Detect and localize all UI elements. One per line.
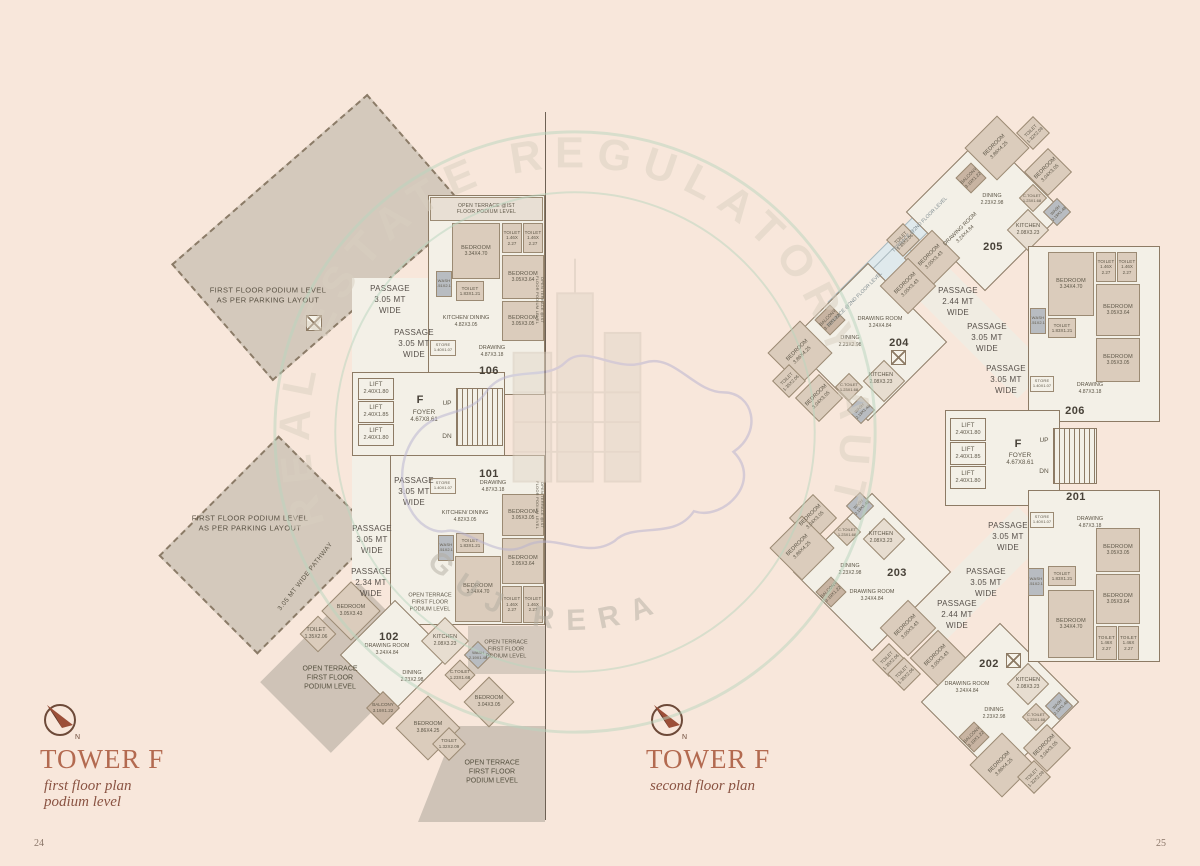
room-drawing-label: DRAWING4.87X3.18 xyxy=(1077,516,1103,530)
room-ctoilet-label: C.TOILET1.23X1.68 xyxy=(1027,712,1045,722)
room-dim: 1.46X 2.27 xyxy=(527,602,539,613)
lift: LIFT2.40X1.80 xyxy=(358,378,394,400)
stairs-dn-label: DN xyxy=(1039,468,1048,476)
passage-label: PASSAGE 3.05 MT WIDE xyxy=(967,322,1007,354)
room-name: BEDROOM xyxy=(508,555,538,562)
room-name: BEDROOM xyxy=(508,271,538,278)
room-dim: 3.24X4.84 xyxy=(364,650,409,657)
right-plan-subtitle: second floor plan xyxy=(650,778,755,795)
room-toilet: TOILET1.83X1.21 xyxy=(456,533,484,553)
room-drawing-label: DRAWING ROOM3.24X4.84 xyxy=(849,589,894,603)
room-name: BEDROOM xyxy=(1103,544,1133,551)
room-toilet: TOILET1.83X1.21 xyxy=(1048,566,1076,586)
room-dim: 1.40X1.07 xyxy=(1033,520,1051,525)
room-dim: 1.35X2.06 xyxy=(305,634,328,641)
room-dim: 3.19X1.22 xyxy=(372,708,394,714)
room-dim: 3.05X3.64 xyxy=(1107,310,1130,316)
room-name: BEDROOM xyxy=(1103,304,1133,311)
room-wash: WASH1.51X2.10 xyxy=(436,271,452,297)
room-name: KITCHEN xyxy=(1016,223,1040,230)
room-dim: 4.87X3.18 xyxy=(1077,389,1103,396)
room-dim: 2.23X2.98 xyxy=(839,570,862,577)
terrace-strip-label: OPEN TERRACE @IST FLOOR PODIUM LEVEL xyxy=(535,481,545,529)
podium-label: FIRST FLOOR PODIUM LEVEL AS PER PARKING … xyxy=(188,285,348,305)
foyer-label: FOYER4.67X8.61 xyxy=(410,409,437,425)
room-toilet: TOILET1.46X 2.27 xyxy=(523,586,543,623)
left-plan-title: TOWER F xyxy=(40,744,164,775)
open-terrace-label: OPEN TERRACE FIRST FLOOR PODIUM LEVEL xyxy=(464,758,519,785)
room-toilet: TOILET1.83X1.21 xyxy=(456,281,484,301)
room-bedroom: BEDROOM3.05X3.05 xyxy=(1096,338,1140,382)
room-dim: 1.40X1.07 xyxy=(434,348,452,353)
room-name: BEDROOM xyxy=(475,695,503,702)
room-kitchen-label: KITCHEN2.08X3.23 xyxy=(433,634,457,648)
foyer-letter: F xyxy=(417,393,424,407)
room-dim: 3.05X3.05 xyxy=(512,515,535,521)
room-dim: 2.23X2.98 xyxy=(981,200,1004,207)
room-dim: 1.83X1.21 xyxy=(1052,576,1073,581)
room-name: KITCHEN xyxy=(869,372,893,379)
room-wash: WASH1.51X2.10 xyxy=(1028,568,1044,596)
staircase xyxy=(456,388,503,446)
room-drawing-label: DRAWING ROOM3.24X4.84 xyxy=(364,643,409,657)
room-dim: 3.24X4.84 xyxy=(849,596,894,603)
room-toilet-label: TOILET1.32X2.09 xyxy=(439,738,460,750)
room-name: BEDROOM xyxy=(463,583,493,590)
room-name: DRAWING xyxy=(479,345,505,352)
room-dim: 2.23X2.98 xyxy=(983,714,1006,721)
room-dim: 3.34X4.70 xyxy=(1060,624,1083,630)
lift: LIFT2.40X1.85 xyxy=(950,442,986,465)
brochure-page: FIRST FLOOR PODIUM LEVEL AS PER PARKING … xyxy=(0,0,1200,866)
duct-box xyxy=(891,350,906,365)
lift-name: LIFT xyxy=(369,382,382,389)
room-bedroom: BEDROOM3.05X3.64 xyxy=(1096,574,1140,624)
room-dim: 1.83X1.21 xyxy=(460,291,481,296)
unit-number-106: 106 xyxy=(479,364,499,378)
room-balcony-label: BALCONY3.19X1.22 xyxy=(372,702,394,714)
svg-text:N: N xyxy=(75,734,80,741)
room-store: STORE1.40X1.07 xyxy=(430,340,456,356)
room-toilet: TOILET1.46X 2.27 xyxy=(523,223,543,253)
room-dim: 1.46X 2.27 xyxy=(1121,264,1133,275)
room-dim: 2.08X3.23 xyxy=(869,379,893,386)
passage-label: PASSAGE 2.44 MT WIDE xyxy=(938,286,978,318)
room-kitchen-label: KITCHEN/ DINING4.82X3.05 xyxy=(443,315,489,329)
room-dim: 4.87X3.18 xyxy=(479,352,505,359)
room-toilet: TOILET1.83X1.21 xyxy=(1048,318,1076,338)
room-dim: 2.23X2.98 xyxy=(839,342,862,349)
room-bedroom: BEDROOM3.05X3.64 xyxy=(502,538,544,584)
room-store: STORE1.40X1.07 xyxy=(430,478,456,494)
room-dim: 2.19X1.48 xyxy=(469,655,487,660)
room-dim: 1.46X 2.27 xyxy=(506,235,518,246)
lift-name: LIFT xyxy=(961,423,974,430)
room-kitchen-label: KITCHEN2.08X3.23 xyxy=(1016,677,1040,691)
room-toilet: TOILET1.46X 2.27 xyxy=(1118,626,1139,660)
room-toilet: TOILET1.46X 2.27 xyxy=(502,223,522,253)
room-name: BEDROOM xyxy=(1056,278,1086,285)
room-drawing-label: DRAWING ROOM3.24X4.84 xyxy=(944,681,989,695)
room-ctoilet-label: C.TOILET1.23X1.68 xyxy=(840,382,858,392)
room-kitchen-label: KITCHEN2.08X3.23 xyxy=(869,531,893,545)
room-name: DINING xyxy=(983,707,1006,714)
room-name: KITCHEN xyxy=(869,531,893,538)
terrace-strip-label: OPEN TERRACE @IST FLOOR PODIUM LEVEL xyxy=(457,203,516,215)
room-dim: 3.05X3.64 xyxy=(512,561,535,567)
room-toilet-label: TOILET1.35X2.06 xyxy=(305,627,328,641)
room-ctoilet-label: C.TOILET1.23X1.68 xyxy=(450,669,471,681)
podium-label: FIRST FLOOR PODIUM LEVEL AS PER PARKING … xyxy=(170,513,330,533)
room-dim: 3.34X4.70 xyxy=(467,589,490,595)
room-dining-label: DINING2.23X2.98 xyxy=(401,670,424,684)
room-name: KITCHEN xyxy=(433,634,457,641)
room-name: KITCHEN xyxy=(1016,677,1040,684)
foyer-label: FOYER4.67X8.61 xyxy=(1006,452,1033,468)
right-plan-title: TOWER F xyxy=(646,744,770,775)
room-dim: 4.67X8.61 xyxy=(410,417,437,425)
room-bedroom: BEDROOM3.05X3.05 xyxy=(1096,528,1140,572)
room-ctoilet-label: C.TOILET1.23X1.68 xyxy=(1023,193,1041,203)
room-dim: 1.23X1.68 xyxy=(840,387,858,392)
room-dim: 2.08X3.23 xyxy=(433,641,457,648)
page-number-right: 25 xyxy=(1156,838,1166,849)
room-dim: 2.08X3.23 xyxy=(869,538,893,545)
room-dim: 3.05X3.64 xyxy=(512,277,535,283)
stairs-up-label: UP xyxy=(442,400,451,408)
room-drawing-label: DRAWING4.87X3.18 xyxy=(1077,382,1103,396)
passage-label: PASSAGE 3.05 MT WIDE xyxy=(394,476,434,508)
open-terrace-label: OPEN TERRACE FIRST FLOOR PODIUM LEVEL xyxy=(302,664,357,691)
room-dim: 1.46X 2.27 xyxy=(1123,640,1135,651)
room-name: DRAWING xyxy=(480,480,506,487)
unit-number-102: 102 xyxy=(379,630,399,644)
room-ctoilet-label: C.TOILET1.23X1.68 xyxy=(838,527,856,537)
passage-label: PASSAGE 3.05 MT WIDE xyxy=(352,524,392,556)
room-dim: 1.23X1.68 xyxy=(1027,717,1045,722)
room-name: TOILET xyxy=(439,738,460,744)
room-dim: 1.32X2.09 xyxy=(439,744,460,750)
room-dim: 1.83X1.21 xyxy=(460,543,481,548)
room-dim: 4.67X8.61 xyxy=(1006,460,1033,468)
room-bedroom: BEDROOM3.34X4.70 xyxy=(452,223,500,279)
room-store: STORE1.40X1.07 xyxy=(1030,376,1054,392)
room-name: DINING xyxy=(839,335,862,342)
room-kitchen-label: KITCHEN/ DINING4.82X3.05 xyxy=(442,510,488,524)
room-dim: 1.51X2.10 xyxy=(1028,582,1044,587)
room-name: BEDROOM xyxy=(1103,354,1133,361)
passage-label: PASSAGE 2.44 MT WIDE xyxy=(937,599,977,631)
staircase xyxy=(1053,428,1097,484)
room-name: BEDROOM xyxy=(337,604,365,611)
room-name: DRAWING ROOM xyxy=(849,589,894,596)
room-bedroom-label: BEDROOM3.05X3.43 xyxy=(337,604,365,618)
room-drawing-label: DRAWING4.87X3.18 xyxy=(479,345,505,359)
room-dim: 1.51X2.10 xyxy=(436,284,452,289)
lift-name: LIFT xyxy=(369,405,382,412)
page-divider xyxy=(545,112,546,820)
room-dim: 3.34X4.70 xyxy=(465,251,488,257)
room-dim: 4.87X3.18 xyxy=(480,487,506,494)
room-name: BEDROOM xyxy=(414,721,442,728)
room-dim: 3.24X4.84 xyxy=(857,323,902,330)
left-plan-subtitle: first floor plan xyxy=(44,778,132,795)
open-terrace-label: OPEN TERRACE FIRST FLOOR PODIUM LEVEL xyxy=(484,639,527,660)
room-drawing-label: DRAWING4.87X3.18 xyxy=(480,480,506,494)
room-dim: 1.46X 2.27 xyxy=(1100,264,1112,275)
compass-icon: N xyxy=(645,698,693,746)
lift-dim: 2.40X1.80 xyxy=(363,389,388,396)
passage-zone xyxy=(352,455,392,580)
room-name: KITCHEN/ DINING xyxy=(443,315,489,322)
room-kitchen-label: KITCHEN2.08X3.23 xyxy=(1016,223,1040,237)
room-name: C.TOILET xyxy=(450,669,471,675)
unit-number-202: 202 xyxy=(979,657,999,671)
room-dim: 3.05X3.43 xyxy=(337,611,365,618)
room-dim: 2.23X2.98 xyxy=(401,677,424,684)
passage-label: PASSAGE 3.05 MT WIDE xyxy=(986,364,1026,396)
room-name: BEDROOM xyxy=(508,315,538,322)
lift-dim: 2.40X1.80 xyxy=(363,435,388,442)
unit-number-201: 201 xyxy=(1066,490,1086,504)
svg-text:N: N xyxy=(682,734,687,741)
lift-dim: 2.40X1.85 xyxy=(955,454,980,461)
room-bedroom: BEDROOM3.34X4.70 xyxy=(1048,252,1094,316)
room-dim: 3.05X3.05 xyxy=(1107,550,1130,556)
stairs-dn-label: DN xyxy=(442,433,451,441)
passage-label: PASSAGE 2.34 MT WIDE xyxy=(351,567,391,599)
room-dim: 3.05X3.05 xyxy=(512,321,535,327)
room-name: BEDROOM xyxy=(1103,593,1133,600)
unit-number-204: 204 xyxy=(889,336,909,350)
lift: LIFT2.40X1.80 xyxy=(950,418,986,441)
room-name: DINING xyxy=(401,670,424,677)
room-bedroom: BEDROOM3.05X3.64 xyxy=(1096,284,1140,336)
room-toilet: TOILET1.46X 2.27 xyxy=(1117,252,1137,282)
room-bedroom: BEDROOM3.34X4.70 xyxy=(1048,590,1094,658)
unit-number-205: 205 xyxy=(983,240,1003,254)
lift-name: LIFT xyxy=(961,471,974,478)
room-dim: 1.83X1.21 xyxy=(1052,328,1073,333)
passage-label: PASSAGE 3.05 MT WIDE xyxy=(966,567,1006,599)
room-dim: 3.05X3.64 xyxy=(1107,599,1130,605)
lift-dim: 2.40X1.85 xyxy=(363,412,388,419)
passage-label: PASSAGE 3.05 MT WIDE xyxy=(370,284,410,316)
room-dim: 1.40X1.07 xyxy=(1033,384,1051,389)
room-dim: 2.08X3.23 xyxy=(1016,684,1040,691)
room-dim: 1.23X1.68 xyxy=(1023,198,1041,203)
room-dim: 3.24X4.84 xyxy=(944,688,989,695)
left-plan-subtitle2: podium level xyxy=(44,794,121,811)
compass-icon: N xyxy=(38,698,86,746)
room-dim: 1.40X1.07 xyxy=(434,486,452,491)
terrace-strip: OPEN TERRACE @IST FLOOR PODIUM LEVEL xyxy=(430,197,543,221)
room-name: DRAWING xyxy=(1077,382,1103,389)
passage-label: PASSAGE 3.05 MT WIDE xyxy=(988,521,1028,553)
room-drawing-label: DRAWING ROOM3.24X4.84 xyxy=(857,316,902,330)
lift: LIFT2.40X1.80 xyxy=(950,466,986,489)
room-name: BEDROOM xyxy=(1056,618,1086,625)
duct-box xyxy=(1006,653,1021,668)
room-dining-label: DINING2.23X2.98 xyxy=(839,563,862,577)
room-bedroom-label: BEDROOM3.86X4.25 xyxy=(414,721,442,735)
foyer-letter: F xyxy=(1015,437,1022,451)
room-dining-label: DINING2.23X2.98 xyxy=(981,193,1004,207)
unit-number-206: 206 xyxy=(1065,404,1085,418)
room-dim: 3.05X3.05 xyxy=(1107,360,1130,366)
room-dining-label: DINING2.23X2.98 xyxy=(983,707,1006,721)
room-wash: WASH1.51X2.10 xyxy=(1030,308,1046,334)
room-store: STORE1.40X1.07 xyxy=(1030,512,1054,528)
room-name: TOILET xyxy=(305,627,328,634)
room-dim: 1.23X1.68 xyxy=(450,675,471,681)
room-name: FOYER xyxy=(1006,452,1033,460)
room-toilet: TOILET1.46X 2.27 xyxy=(1096,252,1116,282)
stairs-up-label: UP xyxy=(1039,437,1048,445)
duct-box xyxy=(306,315,322,331)
open-terrace-label: OPEN TERRACE FIRST FLOOR PODIUM LEVEL xyxy=(408,592,451,613)
lift-name: LIFT xyxy=(961,447,974,454)
room-name: DINING xyxy=(981,193,1004,200)
room-name: FOYER xyxy=(410,409,437,417)
lift: LIFT2.40X1.85 xyxy=(358,401,394,423)
unit-number-203: 203 xyxy=(887,566,907,580)
room-dim: 4.87X3.18 xyxy=(1077,523,1103,530)
room-name: DRAWING ROOM xyxy=(944,681,989,688)
room-bedroom-label: BEDROOM3.04X3.05 xyxy=(475,695,503,709)
room-wash-label: WASH2.19X1.48 xyxy=(469,650,487,660)
room-dim: 3.04X3.05 xyxy=(475,702,503,709)
room-dim: 1.46X 2.27 xyxy=(1101,640,1113,651)
room-dim: 3.34X4.70 xyxy=(1060,284,1083,290)
room-dim: 4.82X3.05 xyxy=(443,322,489,329)
room-kitchen-label: KITCHEN2.08X3.23 xyxy=(869,372,893,386)
room-dim: 1.23X1.68 xyxy=(838,532,856,537)
lift-dim: 2.40X1.80 xyxy=(955,430,980,437)
room-dim: 2.08X3.23 xyxy=(1016,230,1040,237)
room-bedroom: BEDROOM3.34X4.70 xyxy=(455,556,501,622)
room-toilet: TOILET1.46X 2.27 xyxy=(502,586,522,623)
passage-label: PASSAGE 3.05 MT WIDE xyxy=(394,328,434,360)
room-dining-label: DINING2.23X2.98 xyxy=(839,335,862,349)
room-wash: WASH1.51X2.10 xyxy=(438,535,454,561)
room-dim: 1.51X2.10 xyxy=(438,548,454,553)
lift: LIFT2.40X1.80 xyxy=(358,424,394,446)
terrace-strip-label: OPEN TERRACE @IST FLOOR PODIUM LEVEL xyxy=(535,276,545,324)
room-dim: 1.51X2.10 xyxy=(1030,321,1046,326)
unit-number-101: 101 xyxy=(479,467,499,481)
page-number-left: 24 xyxy=(34,838,44,849)
room-name: DRAWING ROOM xyxy=(857,316,902,323)
room-name: KITCHEN/ DINING xyxy=(442,510,488,517)
room-name: DRAWING ROOM xyxy=(364,643,409,650)
lift-dim: 2.40X1.80 xyxy=(955,478,980,485)
room-name: BALCONY xyxy=(372,702,394,708)
room-toilet: TOILET1.46X 2.27 xyxy=(1096,626,1117,660)
room-dim: 1.46X 2.27 xyxy=(506,602,518,613)
lift-name: LIFT xyxy=(369,428,382,435)
room-dim: 4.82X3.05 xyxy=(442,517,488,524)
room-name: BEDROOM xyxy=(508,509,538,516)
room-name: DINING xyxy=(839,563,862,570)
room-dim: 1.46X 2.27 xyxy=(527,235,539,246)
room-name: DRAWING xyxy=(1077,516,1103,523)
room-name: BEDROOM xyxy=(461,245,491,252)
room-dim: 3.86X4.25 xyxy=(414,728,442,735)
